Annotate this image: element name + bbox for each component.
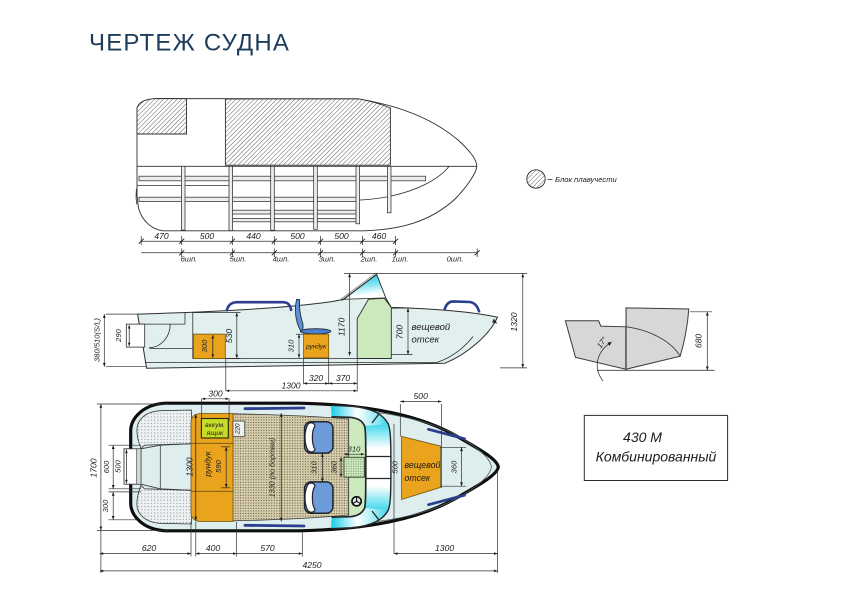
svg-text:2шп.: 2шп.	[360, 255, 378, 264]
svg-text:370: 370	[336, 373, 351, 383]
svg-text:600: 600	[102, 460, 111, 473]
svg-text:300: 300	[101, 499, 110, 512]
svg-text:700: 700	[394, 325, 404, 340]
svg-text:500: 500	[334, 231, 349, 241]
svg-text:1700: 1700	[88, 458, 98, 477]
svg-text:680: 680	[694, 334, 704, 349]
svg-text:рундук: рундук	[204, 450, 213, 477]
svg-text:430 М: 430 М	[623, 429, 662, 445]
svg-text:рундук: рундук	[305, 343, 327, 351]
svg-text:1шп.: 1шп.	[392, 255, 409, 264]
svg-text:500: 500	[391, 460, 400, 473]
svg-text:вещевой: вещевой	[405, 460, 441, 470]
svg-text:1300: 1300	[184, 457, 194, 476]
svg-text:570: 570	[260, 543, 275, 553]
svg-text:310: 310	[348, 445, 361, 454]
svg-text:аккум.: аккум.	[205, 422, 225, 429]
svg-text:290: 290	[114, 328, 123, 342]
svg-text:470: 470	[154, 231, 169, 241]
svg-text:620: 620	[142, 543, 157, 553]
svg-text:6шп.: 6шп.	[181, 255, 198, 264]
svg-text:300: 300	[200, 339, 209, 352]
svg-text:360: 360	[330, 460, 339, 473]
svg-text:отсек: отсек	[412, 335, 440, 346]
svg-text:3шп.: 3шп.	[319, 255, 336, 264]
svg-text:1320: 1320	[509, 312, 519, 331]
svg-text:1330 (по бортам): 1330 (по бортам)	[268, 438, 277, 498]
svg-text:4шп.: 4шп.	[273, 255, 290, 264]
svg-text:5шп.: 5шп.	[230, 255, 247, 264]
svg-text:1300: 1300	[435, 543, 454, 553]
svg-text:440: 440	[246, 231, 261, 241]
svg-text:1300: 1300	[281, 380, 300, 390]
svg-text:0шп.: 0шп.	[447, 255, 464, 264]
svg-text:590: 590	[214, 459, 223, 472]
svg-text:400: 400	[206, 543, 221, 553]
svg-text:310: 310	[309, 460, 318, 473]
svg-text:500: 500	[290, 231, 305, 241]
svg-text:500: 500	[200, 231, 215, 241]
svg-text:530: 530	[224, 329, 234, 344]
svg-text:ЧЕРТЕЖ СУДНА: ЧЕРТЕЖ СУДНА	[89, 30, 290, 57]
svg-text:ящик: ящик	[206, 430, 224, 437]
svg-text:вещевой: вещевой	[412, 322, 451, 333]
svg-text:500: 500	[414, 391, 429, 401]
svg-text:220: 220	[234, 423, 241, 435]
svg-text:380/510(S/L): 380/510(S/L)	[93, 318, 102, 362]
svg-text:отсек: отсек	[405, 473, 431, 483]
svg-text:360: 360	[450, 460, 459, 473]
svg-text:4250: 4250	[302, 560, 321, 570]
svg-text:300: 300	[208, 388, 223, 398]
svg-text:320: 320	[309, 373, 324, 383]
svg-text:500: 500	[114, 459, 123, 472]
svg-text:1170: 1170	[336, 318, 346, 337]
svg-text:310: 310	[287, 339, 296, 352]
svg-text:460: 460	[372, 231, 387, 241]
svg-text:Блок плавучести: Блок плавучести	[555, 175, 618, 184]
svg-text:Комбинированный: Комбинированный	[596, 449, 717, 465]
